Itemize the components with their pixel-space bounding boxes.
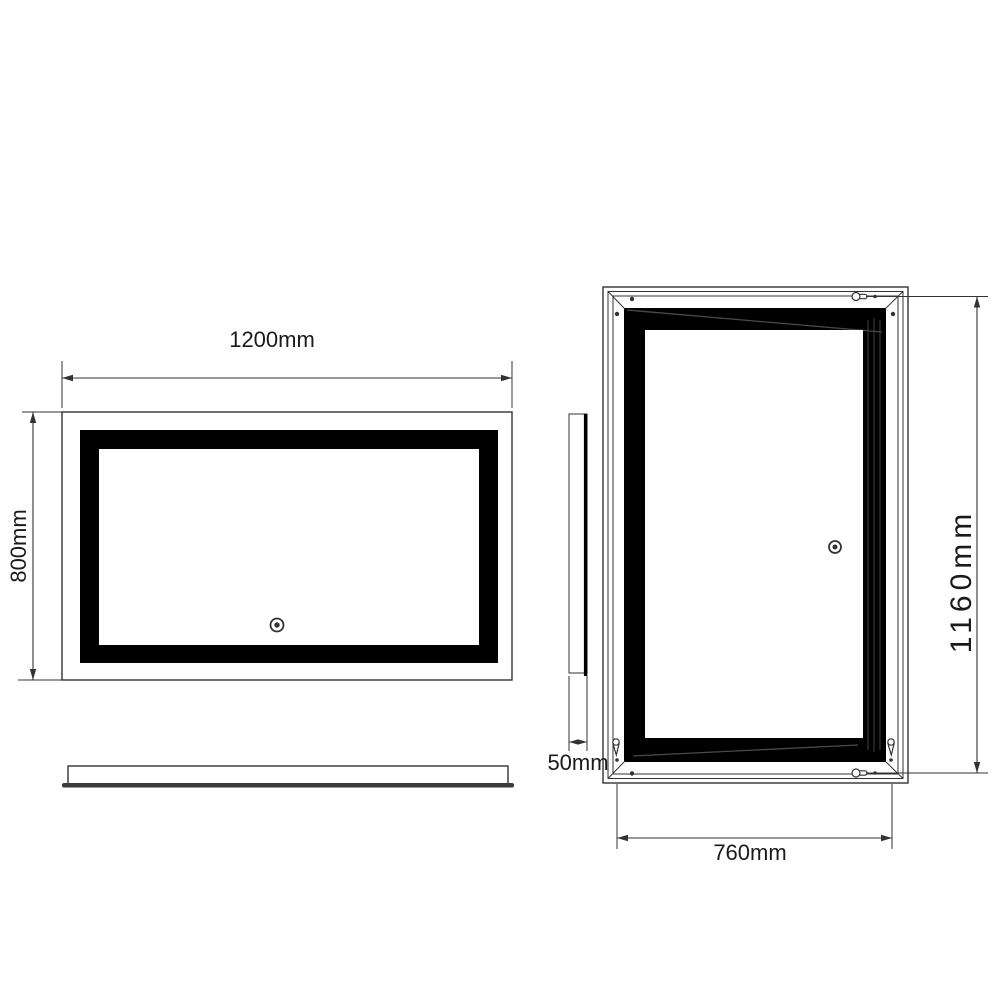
screw-icon xyxy=(889,758,893,762)
back-side-view xyxy=(569,414,587,676)
arrowhead xyxy=(569,739,578,744)
arrowhead xyxy=(62,375,73,381)
touch-sensor-icon xyxy=(829,541,841,553)
teardrop-hanger-icon xyxy=(613,739,619,755)
touch-sensor-dot xyxy=(833,545,838,550)
touch-sensor-icon xyxy=(271,619,284,632)
screw-icon xyxy=(630,297,634,301)
teardrop-hole xyxy=(888,739,894,745)
teardrop-hole xyxy=(613,739,619,745)
arrowhead xyxy=(30,412,36,423)
depth-dimension-label: 50mm xyxy=(547,750,608,775)
arrowhead xyxy=(578,739,587,744)
side-profile-body xyxy=(68,766,508,784)
back-panel-area xyxy=(645,330,863,738)
screw-icon xyxy=(615,312,619,316)
front-height-dimension: 800mm xyxy=(6,412,62,680)
keyhole-hole xyxy=(852,293,860,301)
back-width-dimension: 760mm xyxy=(617,784,892,865)
back-view xyxy=(603,287,908,783)
screw-icon xyxy=(891,312,895,316)
front-mirror-area xyxy=(99,449,479,645)
mirror-dimension-drawing: 1200mm 800mm xyxy=(0,0,1000,1000)
teardrop-hanger-icon xyxy=(888,739,894,755)
front-height-dimension-label: 800mm xyxy=(6,509,31,582)
back-width-dimension-label: 760mm xyxy=(713,840,786,865)
arrowhead xyxy=(974,297,980,308)
back-height-dimension-label: 1160mm xyxy=(945,509,978,654)
front-width-dimension-label: 1200mm xyxy=(229,327,315,352)
front-width-dimension: 1200mm xyxy=(62,327,512,408)
miter-corner xyxy=(885,292,903,310)
technical-drawing-svg: 1200mm 800mm xyxy=(0,0,1000,1000)
screw-icon xyxy=(630,771,634,775)
arrowhead xyxy=(974,762,980,773)
touch-sensor-dot xyxy=(274,622,279,627)
miter-corner xyxy=(608,761,625,779)
depth-dimension: 50mm xyxy=(547,676,608,775)
front-side-view xyxy=(62,766,514,788)
arrowhead xyxy=(881,835,892,841)
keyhole-hole xyxy=(852,769,860,777)
side-profile-glass-edge xyxy=(62,783,514,788)
miter-corner xyxy=(885,761,903,779)
arrowhead xyxy=(501,375,512,381)
screw-icon xyxy=(615,758,619,762)
arrowhead xyxy=(617,835,628,841)
arrowhead xyxy=(30,669,36,680)
miter-corner xyxy=(608,292,625,310)
front-view xyxy=(62,412,512,680)
